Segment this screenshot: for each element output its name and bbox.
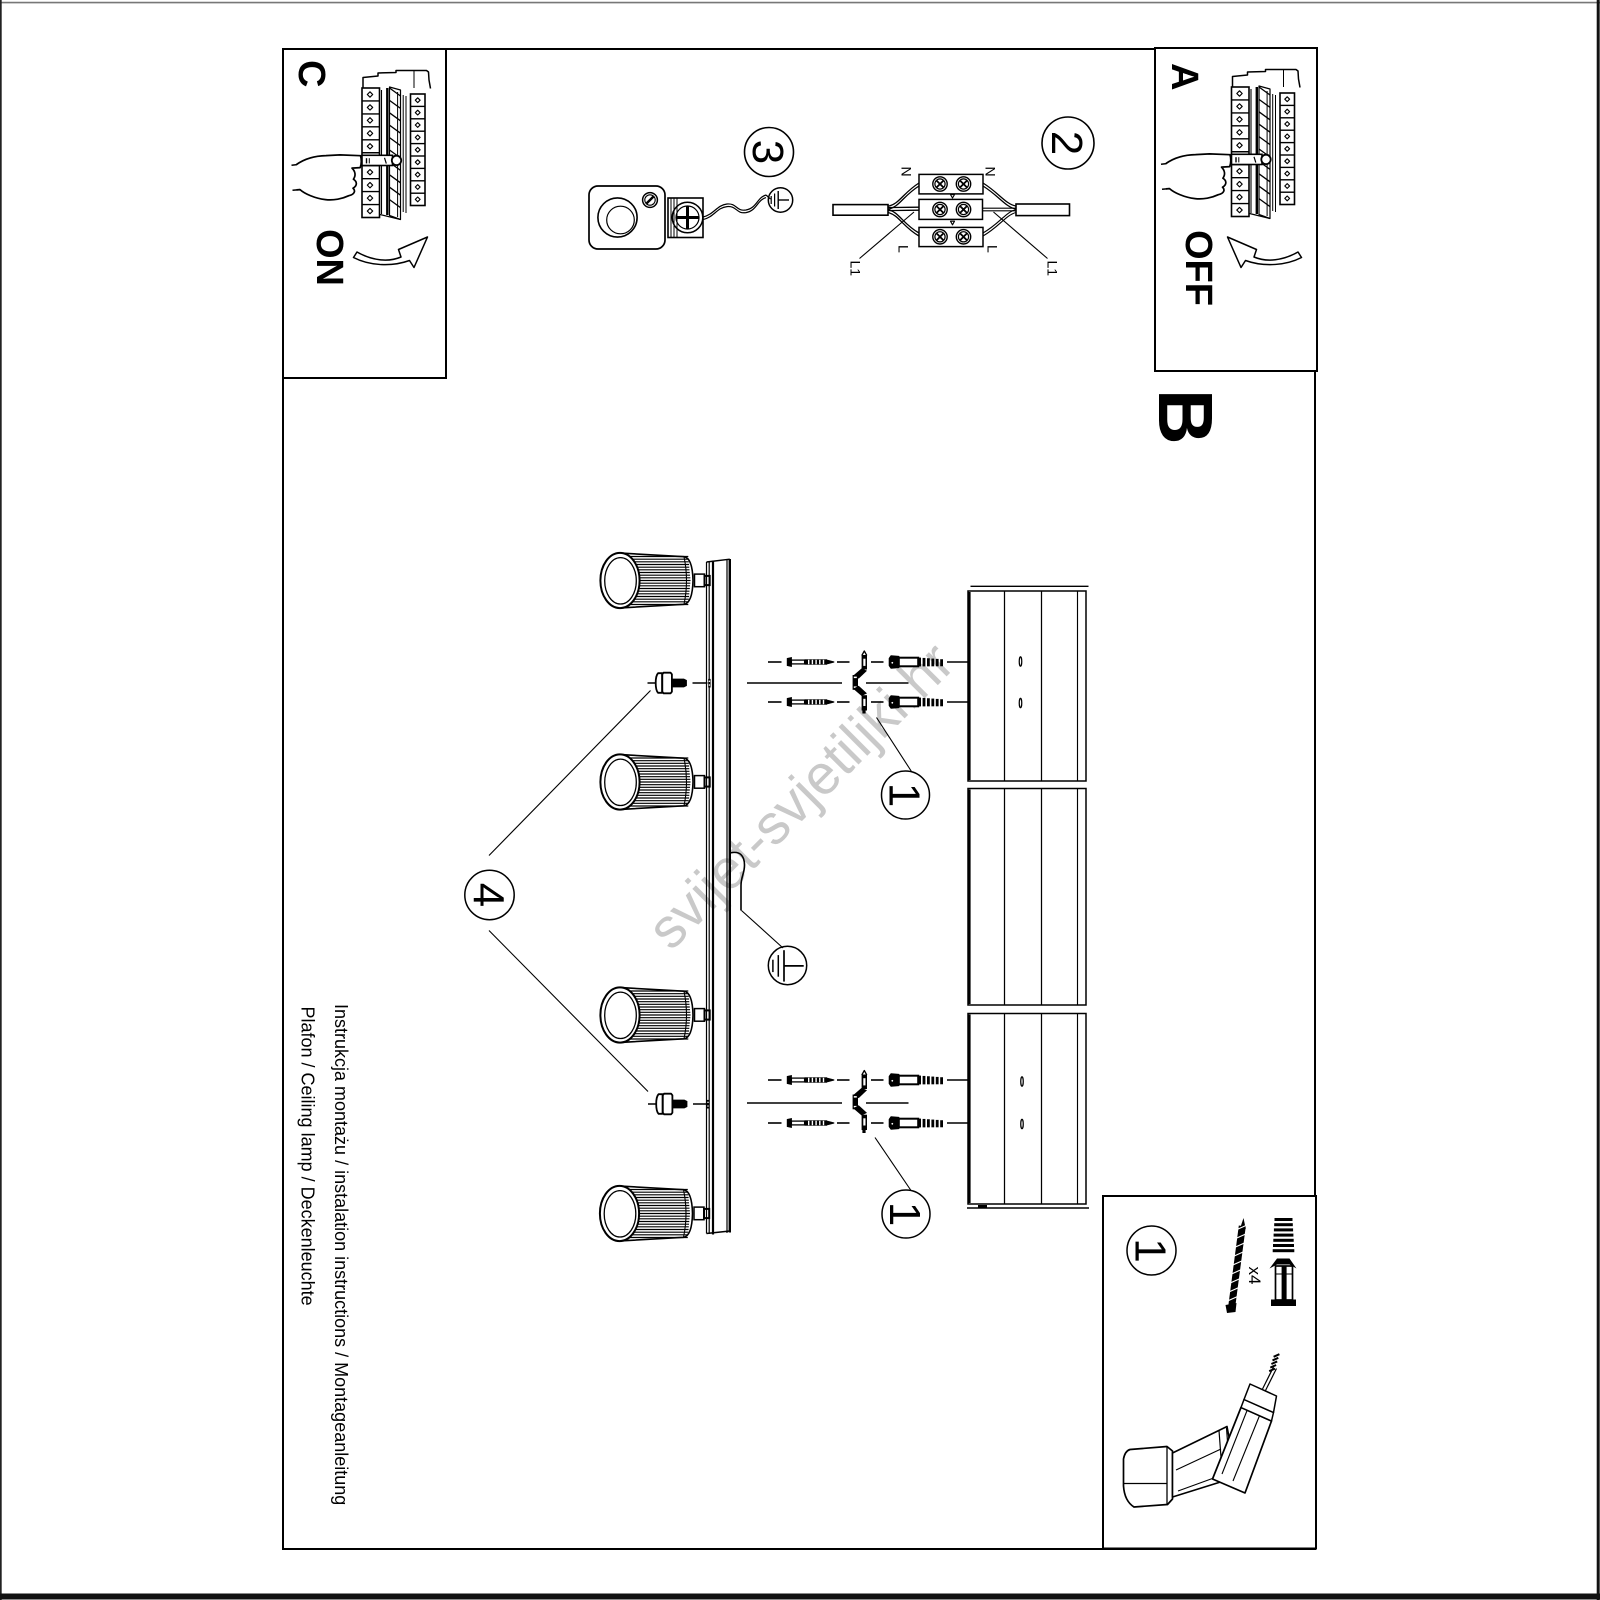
svg-text:OFF: OFF (1177, 230, 1219, 306)
svg-text:L: L (896, 245, 912, 253)
svg-text:N: N (983, 167, 999, 177)
svg-text:x4: x4 (1245, 1267, 1264, 1285)
svg-text:B: B (1142, 389, 1228, 445)
svg-text:N: N (899, 167, 915, 177)
svg-text:A: A (1163, 63, 1205, 90)
svg-text:C: C (290, 60, 332, 87)
svg-text:Instrukcja montażu / instalati: Instrukcja montażu / instalation instruc… (331, 1004, 351, 1505)
svg-text:1: 1 (880, 783, 929, 807)
svg-text:L: L (985, 245, 1001, 253)
svg-text:ON: ON (308, 229, 350, 286)
svg-text:2: 2 (1042, 131, 1091, 155)
svg-text:4: 4 (464, 883, 513, 907)
svg-text:1: 1 (880, 1202, 929, 1226)
svg-text:L1: L1 (848, 261, 864, 277)
svg-text:1: 1 (1126, 1238, 1175, 1262)
svg-text:Plafon / Ceiling lamp / Decken: Plafon / Ceiling lamp / Deckenleuchte (298, 1007, 318, 1306)
svg-text:L1: L1 (1045, 261, 1061, 277)
svg-text:3: 3 (743, 140, 792, 164)
